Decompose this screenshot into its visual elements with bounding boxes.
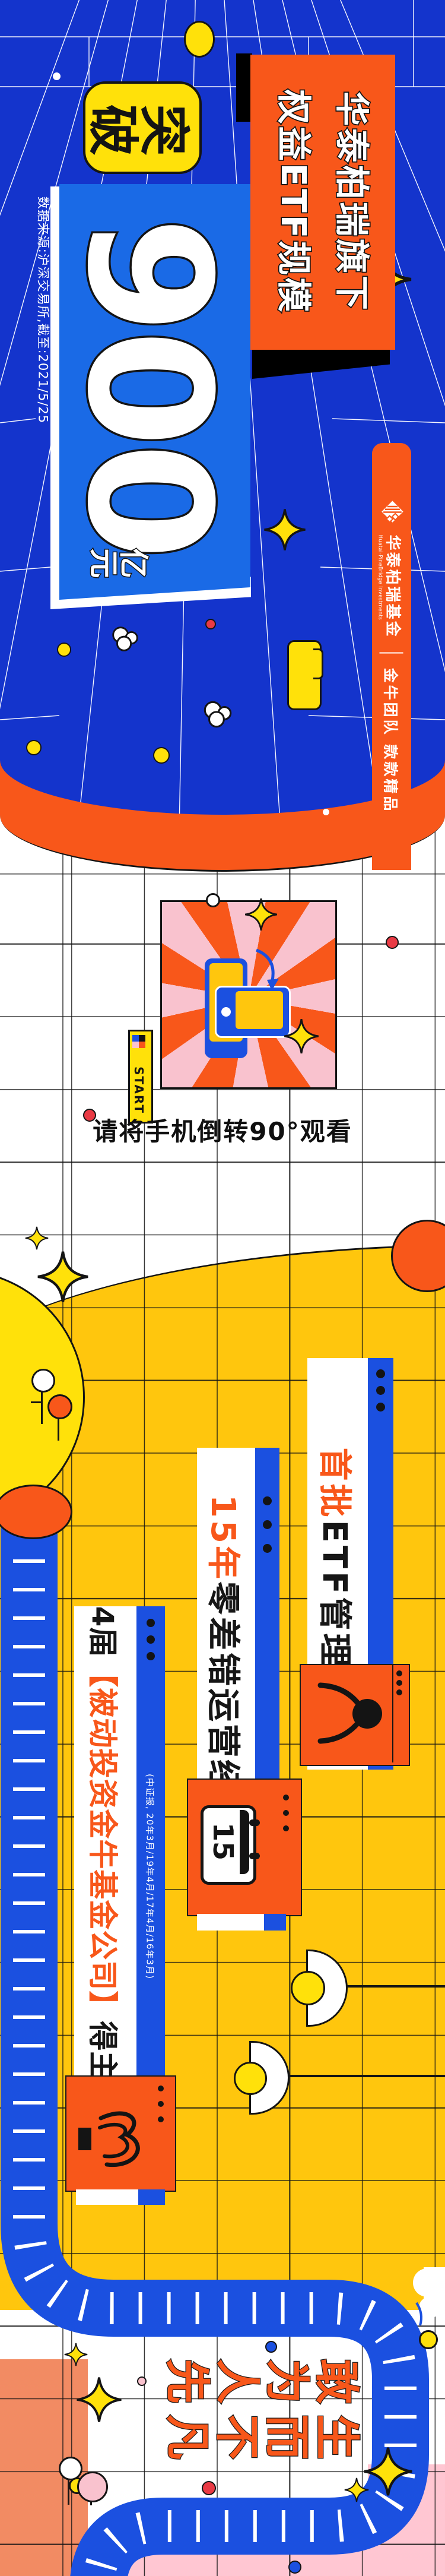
- lamp-pole: [285, 2075, 445, 2077]
- balloon-icon: [300, 1664, 408, 1764]
- brand-tagline: 金牛团队 款款精品: [381, 668, 402, 814]
- sparkle-icon: [37, 1251, 89, 1303]
- red-dot: [386, 936, 399, 949]
- lamp-pole: [41, 1390, 43, 1424]
- white-dot: [323, 809, 329, 815]
- rotate-arrow-icon: [252, 945, 287, 993]
- cloud-icon: [406, 2264, 445, 2329]
- stripe-dot: [147, 1635, 155, 1644]
- stripe-dot: [147, 1652, 155, 1660]
- blue-dot: [288, 2561, 301, 2574]
- calendar-ring: [249, 1819, 260, 1826]
- banner-shadow-top: [236, 53, 252, 122]
- sparkle-icon: [244, 898, 278, 931]
- cup-icon-step: [313, 648, 323, 679]
- sparkle-icon: [76, 2376, 122, 2423]
- divider: [380, 653, 403, 654]
- stripe-dot: [147, 1619, 155, 1627]
- calendar-base-blue: [264, 1914, 286, 1931]
- amount-unit: 亿元: [104, 529, 136, 594]
- box-dot: [283, 1825, 289, 1831]
- promo-poster: 900 亿元 数据来源:沪深交易所,截至:2021/5/25 突破 华泰柏瑞旗下…: [0, 0, 445, 2576]
- calendar-top-bar: [240, 1810, 249, 1874]
- calendar-base-white: [197, 1914, 264, 1931]
- stripe-dot: [263, 1544, 272, 1553]
- yellow-ellipse: [184, 21, 215, 58]
- amount-value: 900: [62, 190, 234, 582]
- hero-section: 900 亿元 数据来源:沪深交易所,截至:2021/5/25 突破 华泰柏瑞旗下…: [0, 0, 445, 870]
- trophy-base-blue: [138, 2189, 165, 2205]
- lamp-pole: [343, 1985, 445, 1988]
- diamond-logo-icon: [378, 499, 405, 527]
- sparkle-icon: [25, 1226, 49, 1250]
- lamp-icon: [77, 2471, 108, 2502]
- phone-landscape-icon: [215, 986, 291, 1038]
- sparkle-icon: [263, 508, 306, 551]
- yellow-dot: [153, 747, 170, 764]
- lamp-pole: [58, 1416, 59, 1441]
- sparkle-icon: [284, 1018, 319, 1054]
- rotate-caption: 请将手机倒转90°观看: [0, 1112, 445, 1148]
- stripe-dot: [376, 1369, 385, 1378]
- calendar-ring: [249, 1853, 260, 1859]
- hero-title: 华泰柏瑞旗下 权益ETF规模: [263, 48, 382, 356]
- lamp-bulb: [234, 2062, 267, 2095]
- red-dot: [205, 619, 216, 629]
- lamp-pole: [31, 1401, 43, 1403]
- sparkle-icon: [363, 2447, 413, 2496]
- blue-dot: [265, 2341, 277, 2353]
- yellow-dot: [57, 643, 71, 657]
- cloud-icon: [199, 700, 236, 729]
- breakthrough-label: 突破: [81, 93, 199, 158]
- citation-note: (中证报, 20年3月/19年4月/17年4月/16年3月): [145, 1774, 157, 1979]
- trophy-icon: [65, 2075, 174, 2189]
- cloud-icon: [108, 625, 142, 653]
- white-dot: [53, 72, 61, 80]
- red-dot: [83, 1109, 96, 1122]
- lamp-icon: [59, 2457, 82, 2480]
- stripe-dot: [263, 1496, 272, 1505]
- brand-name-en: Huatai-PineBridge Investments: [377, 535, 383, 638]
- lamp-icon: [47, 1394, 72, 1419]
- white-dot: [206, 893, 220, 907]
- box-dot: [283, 1810, 289, 1816]
- slogan: 生而不凡 敢为人先: [160, 2349, 362, 2461]
- box-dot: [283, 1795, 289, 1800]
- lamp-icon: [31, 1369, 55, 1393]
- lamp-bulb: [291, 1971, 325, 2005]
- data-source-note: 数据来源:沪深交易所,截至:2021/5/25: [36, 166, 52, 454]
- brand-name: 华泰柏瑞基金: [383, 535, 405, 638]
- yellow-dot: [26, 740, 42, 755]
- stripe-dot: [376, 1386, 385, 1395]
- stripe-dot: [376, 1403, 385, 1412]
- brand-lockup: 华泰柏瑞基金 Huatai-PineBridge Investments 金牛团…: [372, 443, 411, 870]
- flag-icon: [132, 1035, 145, 1048]
- yellow-dot: [419, 2330, 438, 2349]
- highlight-3-text: 4届【被动投资金牛基金公司】得主: [81, 1588, 129, 2099]
- sparkle-icon: [64, 2343, 88, 2366]
- pink-dot: [137, 2376, 147, 2386]
- sparkle-icon: [344, 2477, 369, 2502]
- trophy-base-white: [76, 2189, 138, 2205]
- red-dot: [202, 2481, 216, 2495]
- stripe-dot: [263, 1520, 272, 1529]
- calendar-day: 15: [208, 1823, 239, 1860]
